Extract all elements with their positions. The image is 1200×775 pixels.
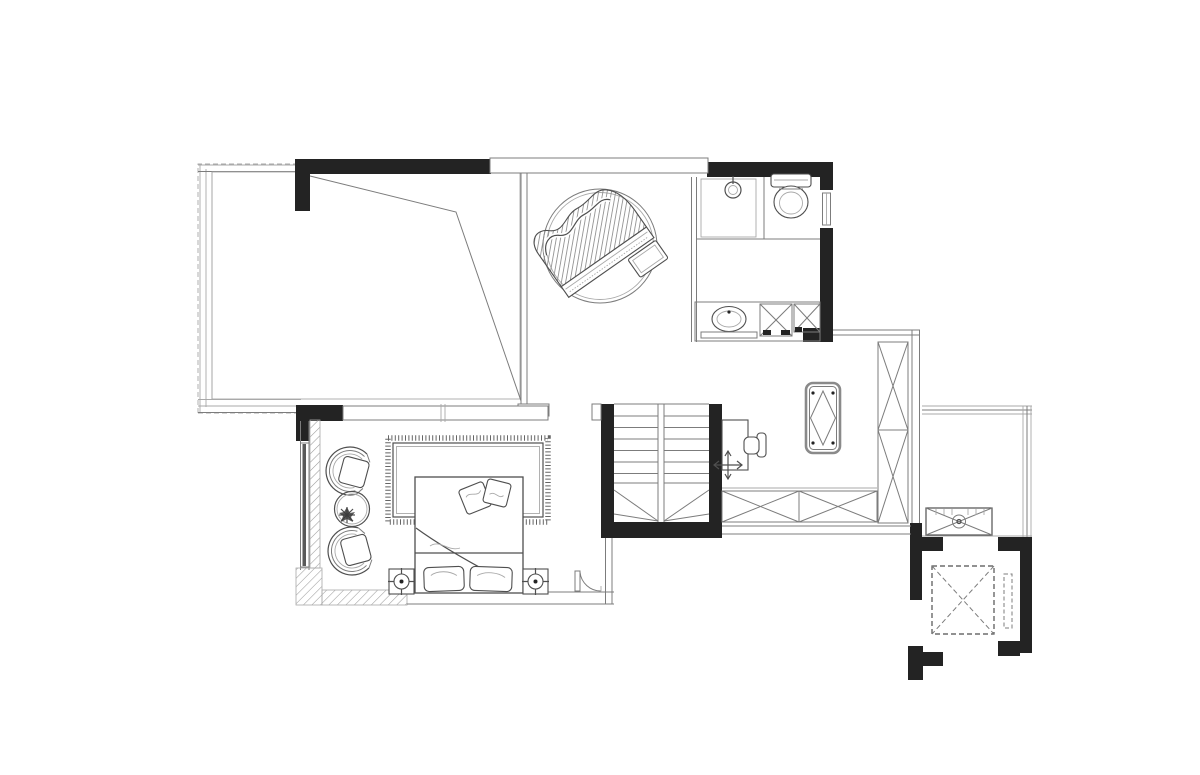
sink-icon [701, 307, 757, 339]
sideboard-cabinet-icon [722, 488, 877, 522]
towel-bar-icon [701, 332, 757, 338]
elevator-shaft [932, 566, 1012, 634]
console-table-icon [806, 383, 840, 453]
bath-cabinet-1 [760, 304, 792, 336]
toilet-icon [771, 174, 811, 218]
wardrobe-icon [878, 342, 908, 523]
grand-piano-icon [528, 180, 668, 318]
glazed-wall-icon [300, 421, 309, 570]
floor-plan-drawing [0, 0, 1200, 775]
door-swing-icon [575, 571, 601, 592]
floor-plan-canvas [0, 0, 1200, 775]
round-side-table [335, 492, 370, 527]
bed-pillow-2 [470, 566, 513, 591]
nightstand-left [388, 568, 415, 595]
hatched-curtain-band [310, 420, 320, 568]
room-piano [528, 180, 668, 318]
roof-valley-lines [310, 176, 521, 401]
elevator-car-icon [932, 566, 994, 634]
stair-treads-left [614, 416, 658, 521]
room-bathroom [692, 174, 834, 342]
bed-icon [415, 477, 523, 593]
armchair-1 [321, 442, 373, 499]
top-center-wall [490, 158, 708, 173]
counterweight-icon [1004, 574, 1012, 628]
room-study-corridor [714, 330, 920, 534]
room-terrace [198, 164, 521, 413]
throw-pillow-2 [482, 478, 511, 507]
staircase [614, 404, 709, 522]
terrace-floor-edge [212, 172, 520, 399]
armchair-2 [323, 523, 375, 580]
nightstand-right [522, 568, 549, 595]
window-icon [820, 190, 833, 228]
ac-outdoor-unit-icon [926, 508, 992, 535]
room-balcony [922, 406, 1032, 537]
shower-area [701, 179, 756, 237]
bedroom-top-wall [343, 406, 548, 420]
bath-cabinet-2 [794, 304, 820, 332]
door-jamb [592, 404, 601, 420]
stair-treads-right [664, 416, 709, 521]
hatched-corner-block [296, 568, 322, 605]
plant-icon [339, 507, 355, 523]
terrace-dashed-outline [198, 164, 301, 413]
bed-pillow-1 [424, 566, 465, 591]
room-bedroom [296, 404, 614, 605]
